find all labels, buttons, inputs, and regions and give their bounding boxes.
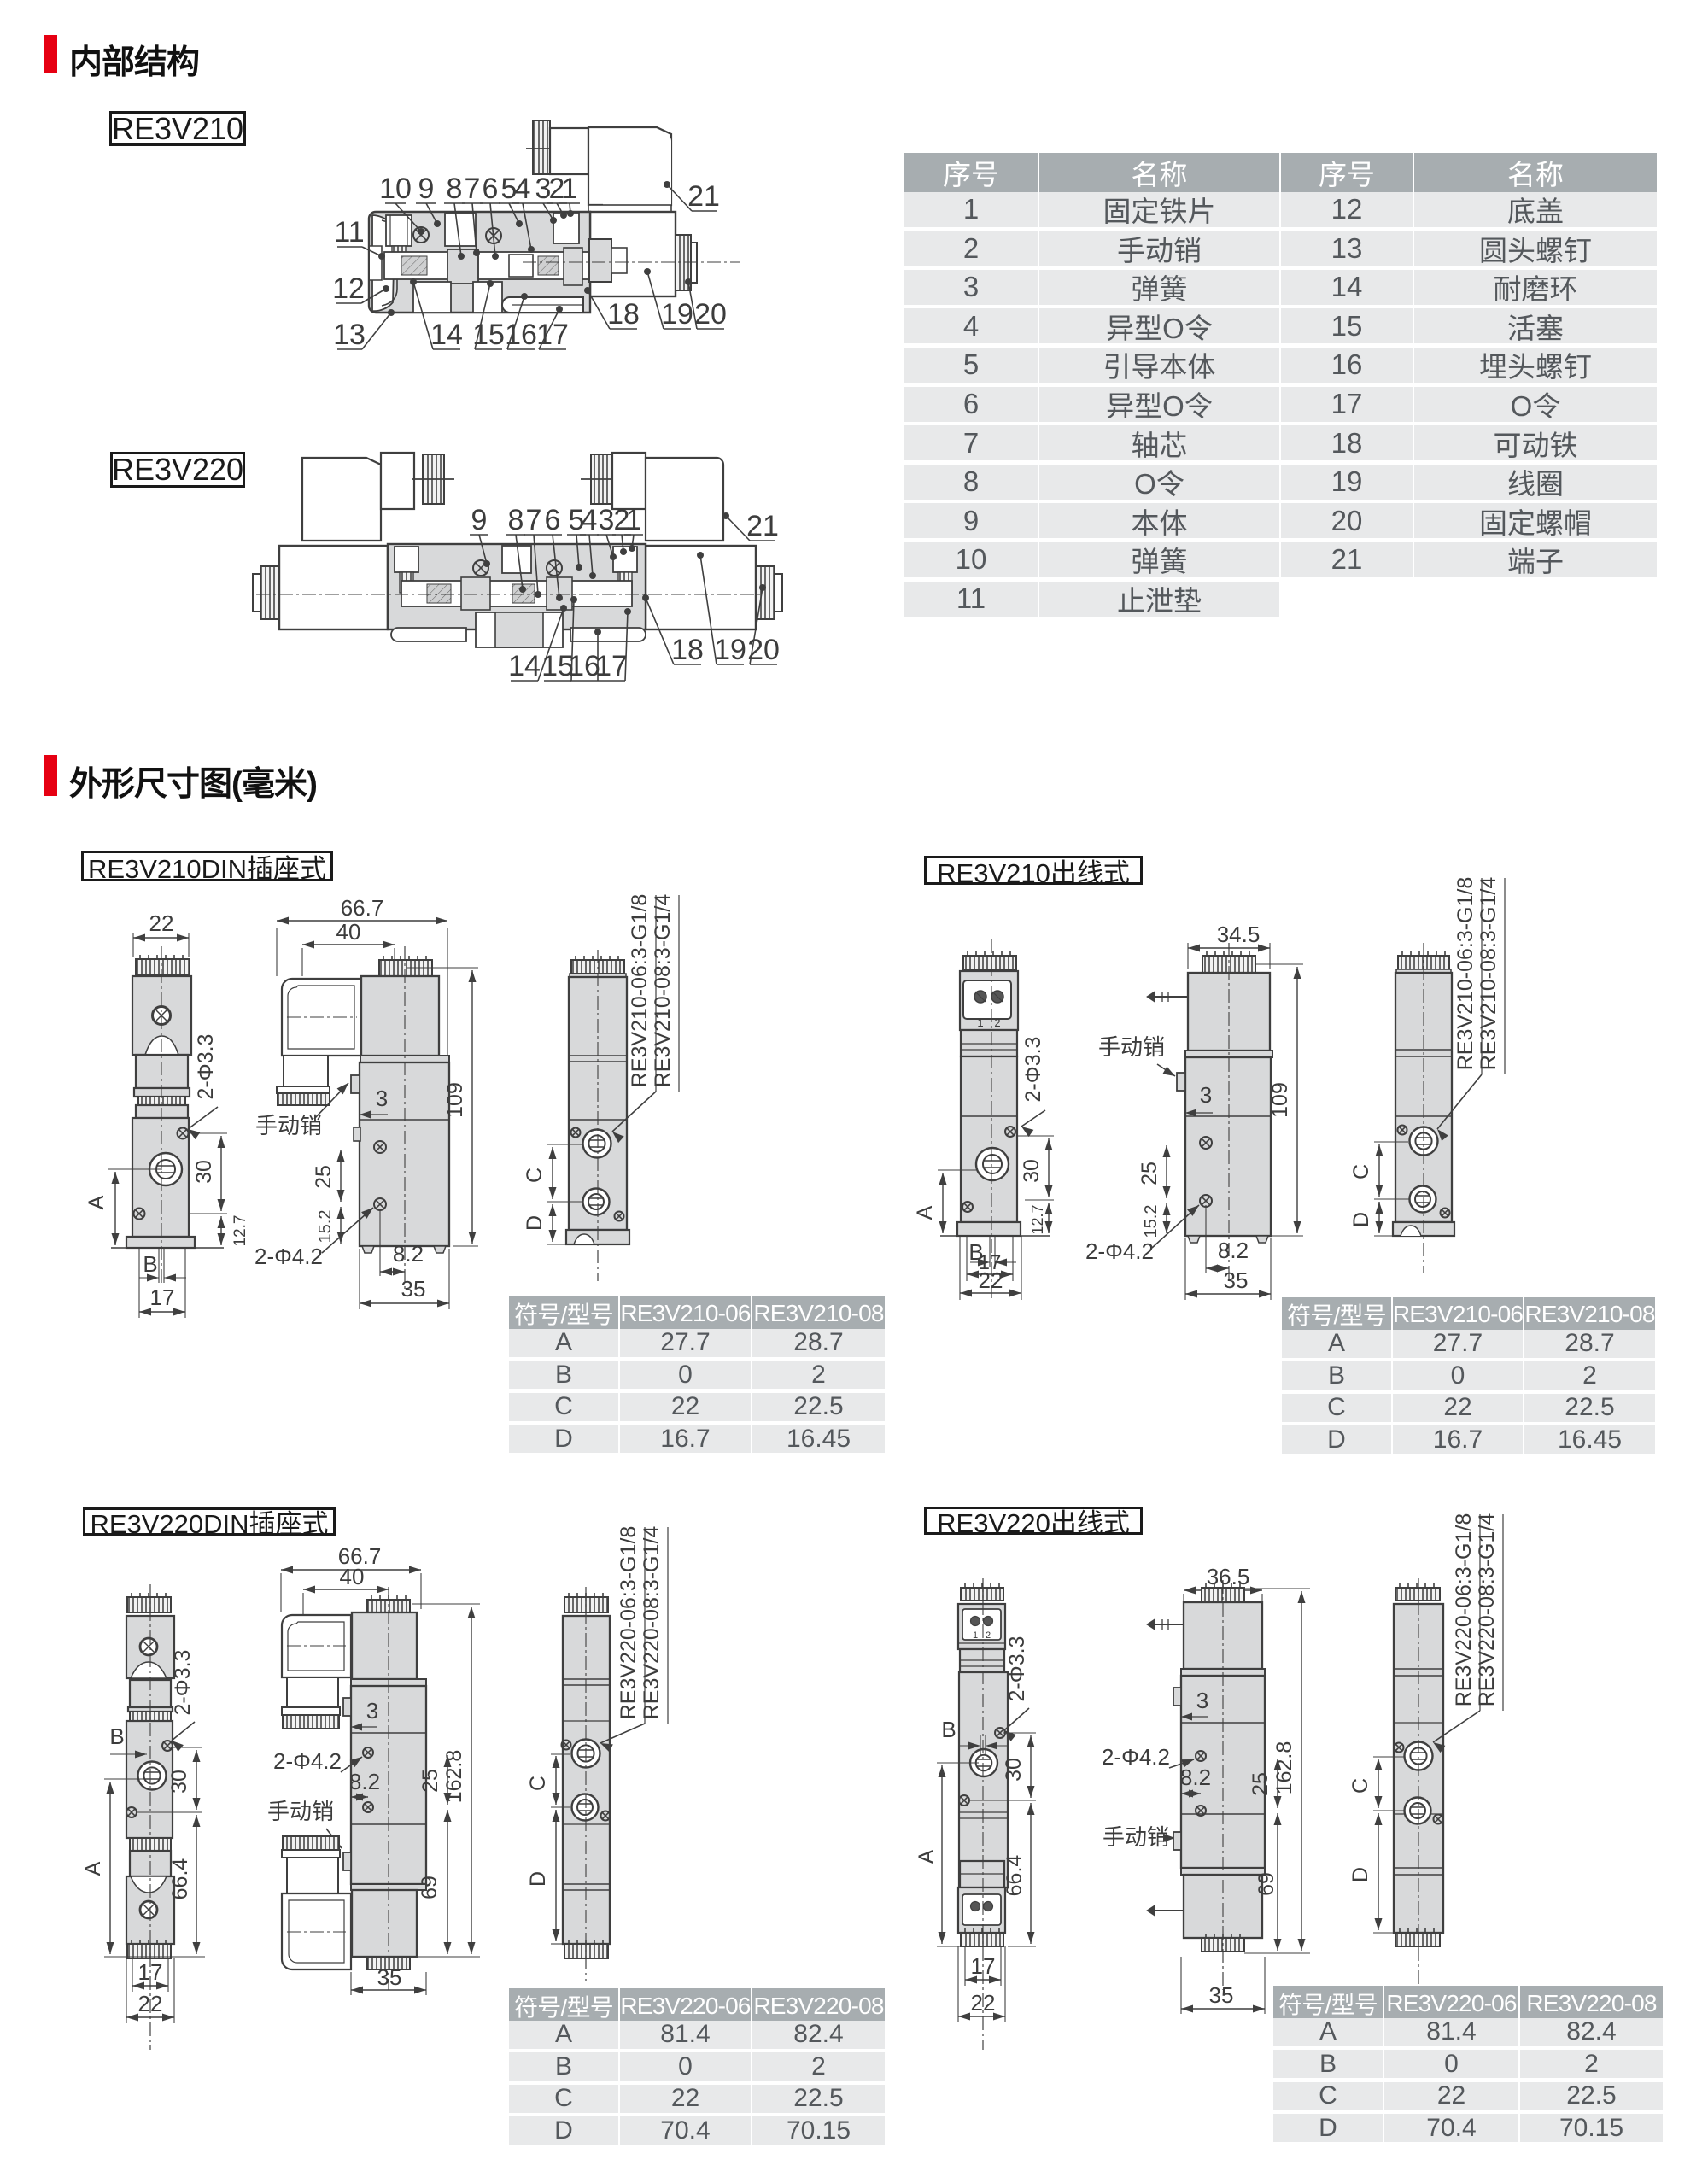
- svg-text:3: 3: [376, 1086, 388, 1111]
- svg-text:A: A: [85, 1195, 108, 1209]
- svg-text:3: 3: [1196, 1688, 1208, 1713]
- svg-text:3: 3: [366, 1698, 378, 1724]
- svg-text:C: C: [1348, 1778, 1372, 1794]
- svg-text:162.8: 162.8: [442, 1750, 466, 1804]
- svg-text:RE3V210-06:3-G1/8: RE3V210-06:3-G1/8: [628, 894, 652, 1088]
- svg-text:18: 18: [671, 634, 704, 666]
- svg-text:4: 4: [515, 173, 531, 205]
- svg-text:69: 69: [1255, 1872, 1278, 1896]
- svg-text:A: A: [81, 1861, 105, 1876]
- svg-text:2: 2: [986, 1630, 991, 1641]
- svg-text:2-Φ3.3: 2-Φ3.3: [194, 1034, 218, 1100]
- svg-text:11: 11: [334, 216, 364, 249]
- svg-text:30: 30: [167, 1770, 191, 1794]
- svg-text:40: 40: [336, 919, 361, 945]
- svg-text:C: C: [1349, 1164, 1373, 1179]
- svg-text:2-Φ4.2: 2-Φ4.2: [1085, 1238, 1154, 1264]
- svg-text:6: 6: [545, 504, 561, 536]
- svg-text:12.7: 12.7: [1029, 1204, 1046, 1234]
- svg-text:手动销: 手动销: [1103, 1824, 1169, 1850]
- svg-text:3: 3: [599, 504, 615, 536]
- svg-text:36.5: 36.5: [1207, 1564, 1250, 1589]
- svg-text:12.7: 12.7: [231, 1215, 249, 1247]
- svg-text:手动销: 手动销: [255, 1113, 322, 1138]
- svg-text:D: D: [1349, 1212, 1373, 1227]
- svg-text:19: 19: [714, 634, 746, 666]
- svg-text:3: 3: [1200, 1082, 1212, 1108]
- svg-text:A: A: [915, 1849, 939, 1864]
- svg-text:10: 10: [379, 173, 412, 205]
- svg-text:1: 1: [626, 504, 642, 536]
- svg-text:8: 8: [508, 504, 524, 536]
- svg-text:109: 109: [443, 1082, 467, 1118]
- svg-text:D: D: [526, 1871, 550, 1887]
- svg-text:19: 19: [661, 298, 693, 331]
- svg-text:17: 17: [150, 1285, 175, 1310]
- svg-text:C: C: [523, 1168, 547, 1183]
- svg-text:14: 14: [430, 319, 463, 351]
- svg-text:8.2: 8.2: [393, 1241, 424, 1267]
- svg-text:RE3V210-06:3-G1/8: RE3V210-06:3-G1/8: [1454, 877, 1477, 1071]
- svg-text:1: 1: [562, 173, 578, 205]
- svg-text:RE3V220-08:3-G1/4: RE3V220-08:3-G1/4: [640, 1526, 664, 1720]
- svg-text:2-Φ4.2: 2-Φ4.2: [254, 1244, 323, 1269]
- svg-text:35: 35: [1209, 1982, 1234, 2008]
- svg-text:17: 17: [595, 650, 628, 682]
- svg-text:8.2: 8.2: [349, 1769, 380, 1794]
- svg-text:25: 25: [1138, 1162, 1161, 1185]
- svg-text:21: 21: [746, 510, 779, 542]
- svg-text:D: D: [1348, 1867, 1372, 1882]
- svg-text:1: 1: [977, 1016, 983, 1029]
- svg-text:8: 8: [447, 173, 463, 205]
- svg-text:C: C: [526, 1776, 550, 1791]
- svg-text:6: 6: [483, 173, 499, 205]
- svg-text:7: 7: [465, 173, 481, 205]
- svg-text:34.5: 34.5: [1217, 922, 1261, 947]
- svg-text:B: B: [143, 1251, 157, 1277]
- svg-text:14: 14: [508, 650, 541, 682]
- svg-text:B: B: [109, 1724, 124, 1749]
- svg-text:109: 109: [1268, 1082, 1292, 1118]
- svg-text:2: 2: [994, 1016, 1000, 1029]
- svg-text:D: D: [523, 1215, 547, 1231]
- svg-text:手动销: 手动销: [1098, 1034, 1165, 1060]
- svg-text:RE3V220-08:3-G1/4: RE3V220-08:3-G1/4: [1475, 1513, 1499, 1707]
- svg-text:RE3V210-08:3-G1/4: RE3V210-08:3-G1/4: [1477, 877, 1500, 1071]
- svg-text:手动销: 手动销: [267, 1799, 334, 1824]
- svg-text:9: 9: [418, 173, 435, 205]
- svg-text:13: 13: [333, 319, 366, 351]
- svg-text:25: 25: [418, 1769, 442, 1793]
- svg-text:2-Φ3.3: 2-Φ3.3: [171, 1650, 195, 1716]
- svg-text:12: 12: [332, 272, 365, 305]
- svg-text:9: 9: [471, 504, 488, 536]
- svg-text:15.2: 15.2: [1142, 1205, 1161, 1238]
- svg-text:22: 22: [149, 910, 174, 936]
- svg-text:30: 30: [192, 1160, 216, 1184]
- svg-text:21: 21: [687, 180, 720, 213]
- svg-text:40: 40: [340, 1564, 365, 1589]
- svg-text:35: 35: [1224, 1267, 1249, 1293]
- svg-text:25: 25: [312, 1165, 336, 1189]
- svg-text:30: 30: [1020, 1159, 1044, 1183]
- svg-text:1: 1: [973, 1630, 978, 1641]
- svg-text:B: B: [941, 1717, 956, 1742]
- svg-text:25: 25: [1249, 1772, 1272, 1796]
- svg-text:66.7: 66.7: [341, 895, 384, 921]
- svg-text:35: 35: [377, 1964, 402, 1990]
- svg-text:7: 7: [526, 504, 542, 536]
- svg-text:RE3V220-06:3-G1/8: RE3V220-06:3-G1/8: [1452, 1513, 1476, 1707]
- svg-text:15.2: 15.2: [316, 1210, 335, 1244]
- svg-text:2-Φ4.2: 2-Φ4.2: [1102, 1744, 1170, 1770]
- svg-text:2-Φ4.2: 2-Φ4.2: [273, 1748, 342, 1774]
- svg-text:16: 16: [505, 319, 537, 351]
- svg-text:RE3V220-06:3-G1/8: RE3V220-06:3-G1/8: [617, 1526, 640, 1720]
- svg-text:15: 15: [472, 319, 505, 351]
- svg-text:162.8: 162.8: [1272, 1741, 1296, 1795]
- svg-text:18: 18: [607, 298, 640, 331]
- svg-text:RE3V210-08:3-G1/4: RE3V210-08:3-G1/4: [651, 894, 675, 1088]
- svg-text:66.4: 66.4: [1003, 1855, 1027, 1897]
- svg-text:2-Φ3.3: 2-Φ3.3: [1021, 1037, 1045, 1103]
- svg-text:8.2: 8.2: [1180, 1765, 1211, 1790]
- svg-text:8.2: 8.2: [1218, 1238, 1249, 1263]
- svg-text:A: A: [913, 1205, 937, 1220]
- svg-text:2-Φ3.3: 2-Φ3.3: [1005, 1636, 1029, 1702]
- svg-text:30: 30: [1002, 1758, 1026, 1782]
- svg-text:20: 20: [694, 298, 727, 331]
- svg-text:4: 4: [582, 504, 598, 536]
- svg-text:22: 22: [979, 1267, 1003, 1293]
- svg-text:66.4: 66.4: [168, 1858, 192, 1900]
